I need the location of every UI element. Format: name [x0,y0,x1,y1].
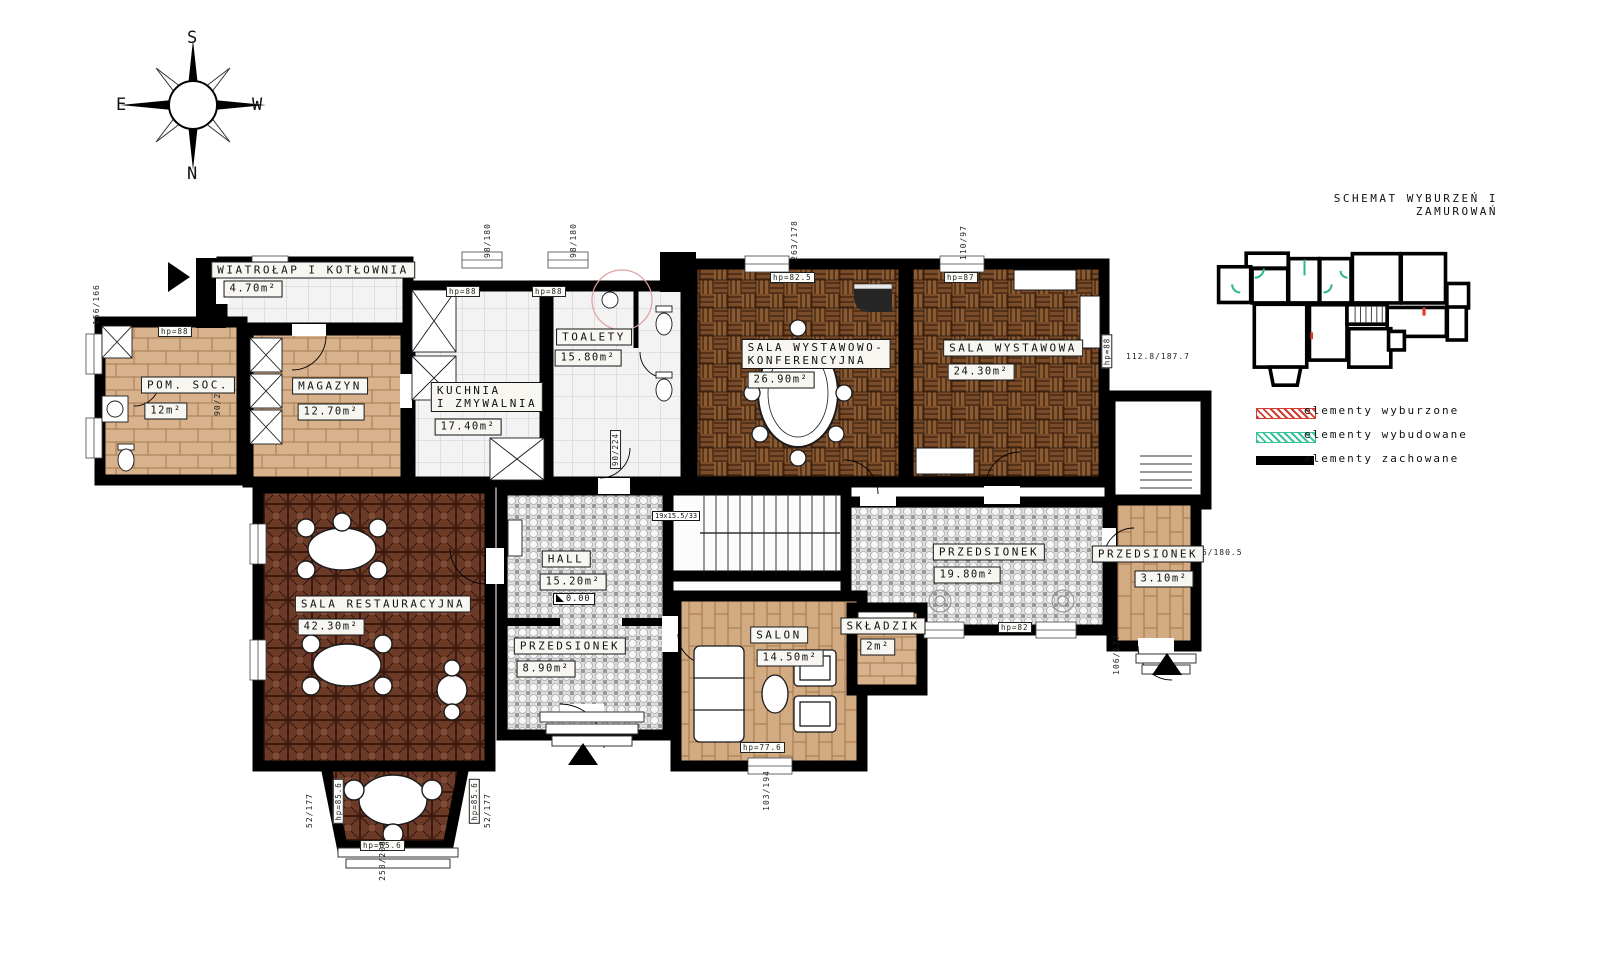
room-label-toalety: TOALETY [556,329,632,346]
room-label-przedsionek-310: PRZEDSIONEK [1092,546,1204,563]
dim-label: 103/194 [762,770,771,811]
room-area-wiatrolap: 4.70m² [224,281,283,298]
room-area-przedsionek-1980: 19.80m² [934,567,1001,584]
room-label-przedsionek-1980: PRZEDSIONEK [933,544,1045,561]
dim-label: 112.8/187.7 [1126,352,1190,361]
room-label-magazyn: MAGAZYN [292,378,368,395]
room-area-sala-konferencyjna: 26.90m² [748,372,815,389]
room-area-kuchnia: 17.40m² [435,419,502,436]
room-label-sala-wystawowa: SALA WYSTAWOWA [943,340,1083,357]
room-area-przedsionek-310: 3.10m² [1135,571,1194,588]
room-area-hall: 15.20m² [540,574,607,591]
dim-label: hp=85.6 [469,779,480,824]
dim-label: 263/178 [790,220,799,261]
room-area-pom-soc: 12m² [144,403,187,420]
compass-west: W [252,95,262,115]
room-area-magazyn: 12.70m² [298,404,365,421]
dim-label: 156/166 [92,284,101,325]
level-marker: 0.00 [553,593,595,605]
dim-label: hp=85.6 [333,779,344,824]
room-label-sala-konferencyjna: SALA WYSTAWOWO- KONFERENCYJNA [742,339,891,369]
dim-label: hp=82 [998,622,1032,633]
room-area-przedsionek-890: 8.90m² [517,661,576,678]
dim-label: hp=88 [158,326,192,337]
room-label-pom-soc: POM. SOC. [141,377,235,394]
dim-label: 258/208 [378,840,387,881]
stairs-label: 19x15.5/33 [652,511,700,521]
room-label-sala-restauracyjna: SALA RESTAURACYJNA [295,596,471,613]
room-area-salon: 14.50m² [757,650,824,667]
room-label-kuchnia-line2: I ZMYWALNIA [437,397,537,410]
dim-label: hp=87 [944,272,978,283]
dim-label: 52/177 [483,793,492,828]
dim-label: hp=88 [1101,335,1112,369]
room-label-sala-konf-line2: KONFERENCYJNA [748,354,885,367]
legend-label-built: elementy wybudowane [1304,428,1468,441]
page-title: SCHEMAT WYBURZEŃ I ZAMUROWAŃ [1252,192,1498,218]
floor-plan-drawing [0,0,1600,977]
room-label-sala-konf-line1: SALA WYSTAWOWO- [748,341,885,354]
dim-label: 110/97 [959,225,968,260]
dim-label: 52/177 [305,793,314,828]
dim-label: 90/224 [610,430,621,469]
room-label-hall: HALL [542,551,591,568]
legend-label-demolished: elementy wyburzone [1304,404,1459,417]
dim-label: 98/180 [483,223,492,258]
floor-plan-page: SCHEMAT WYBURZEŃ I ZAMUROWAŃ elementy wy… [0,0,1600,977]
mini-plan [1219,253,1469,385]
compass-south: S [187,28,197,48]
dim-label: 98/180 [569,223,578,258]
dim-label: hp=88 [446,286,480,297]
room-label-wiatrolap: WIATROŁAP I KOTŁOWNIA [211,262,415,279]
room-area-toalety: 15.80m² [555,350,622,367]
room-area-skladzik: 2m² [860,639,895,656]
room-label-przedsionek-890: PRZEDSIONEK [514,638,626,655]
compass-east: E [116,95,126,115]
dim-label: hp=88 [532,286,566,297]
compass-rose [120,40,266,170]
legend-label-retained: elementy zachowane [1304,452,1459,465]
room-label-kuchnia: KUCHNIA I ZMYWALNIA [431,382,543,412]
room-label-salon: SALON [750,627,808,644]
compass-north: N [187,164,197,184]
dim-label: hp=77.6 [740,742,785,753]
room-label-skladzik: SKŁADZIK [841,618,926,635]
room-label-kuchnia-line1: KUCHNIA [437,384,537,397]
room-area-sala-restauracyjna: 42.30m² [298,619,365,636]
dim-label: 106/177 [1112,634,1121,675]
room-area-sala-wystawowa: 24.30m² [948,364,1015,381]
dim-label: hp=82.5 [770,272,815,283]
